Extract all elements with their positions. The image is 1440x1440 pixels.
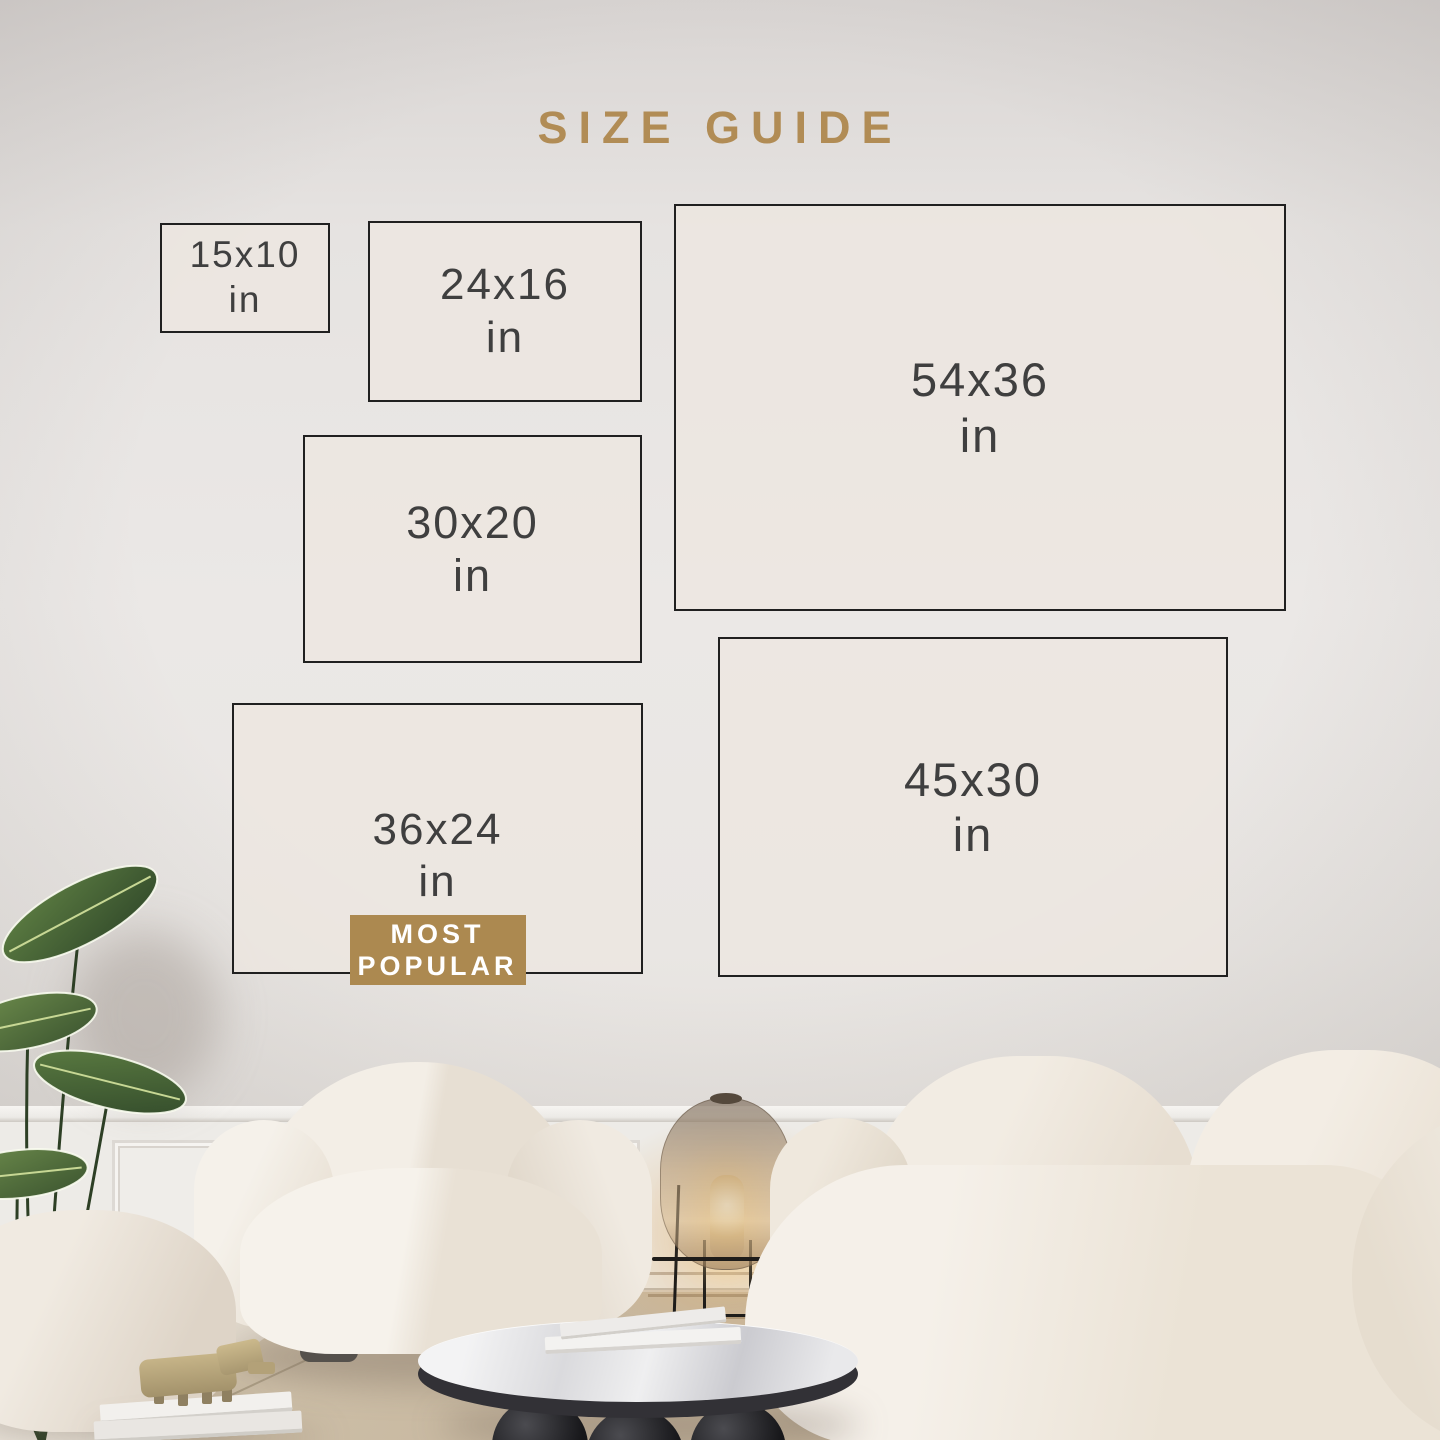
size-unit: in: [453, 552, 492, 599]
size-label: 45x30: [904, 755, 1042, 804]
size-label: 54x36: [911, 355, 1049, 404]
size-option-24x16: 24x16 in: [368, 221, 642, 402]
size-option-45x30: 45x30 in: [718, 637, 1228, 977]
size-option-15x10: 15x10 in: [160, 223, 330, 333]
sofa-seat: [745, 1165, 1440, 1440]
size-guide-image: SIZE GUIDE 15x10 in 24x16 in 54x36 in 30…: [0, 0, 1440, 1440]
size-label: 36x24: [373, 807, 503, 853]
animal-figurine: [140, 1342, 275, 1404]
size-unit: in: [960, 411, 1001, 460]
size-unit: in: [953, 810, 994, 859]
size-option-54x36: 54x36 in: [674, 204, 1286, 611]
size-label: 30x20: [406, 499, 539, 546]
size-label: 15x10: [190, 236, 301, 275]
size-option-30x20: 30x20 in: [303, 435, 642, 663]
size-unit: in: [229, 281, 262, 320]
size-unit: in: [418, 859, 456, 905]
size-label: 24x16: [440, 262, 570, 308]
size-unit: in: [486, 315, 524, 361]
badge-line: MOST: [391, 918, 485, 950]
size-guide-title: SIZE GUIDE: [0, 102, 1440, 154]
size-option-36x24: 36x24 in MOST POPULAR: [232, 703, 643, 974]
badge-line: POPULAR: [357, 950, 517, 982]
lamp-cap: [710, 1093, 742, 1104]
most-popular-badge: MOST POPULAR: [350, 915, 526, 985]
figurine-snout: [248, 1362, 275, 1374]
